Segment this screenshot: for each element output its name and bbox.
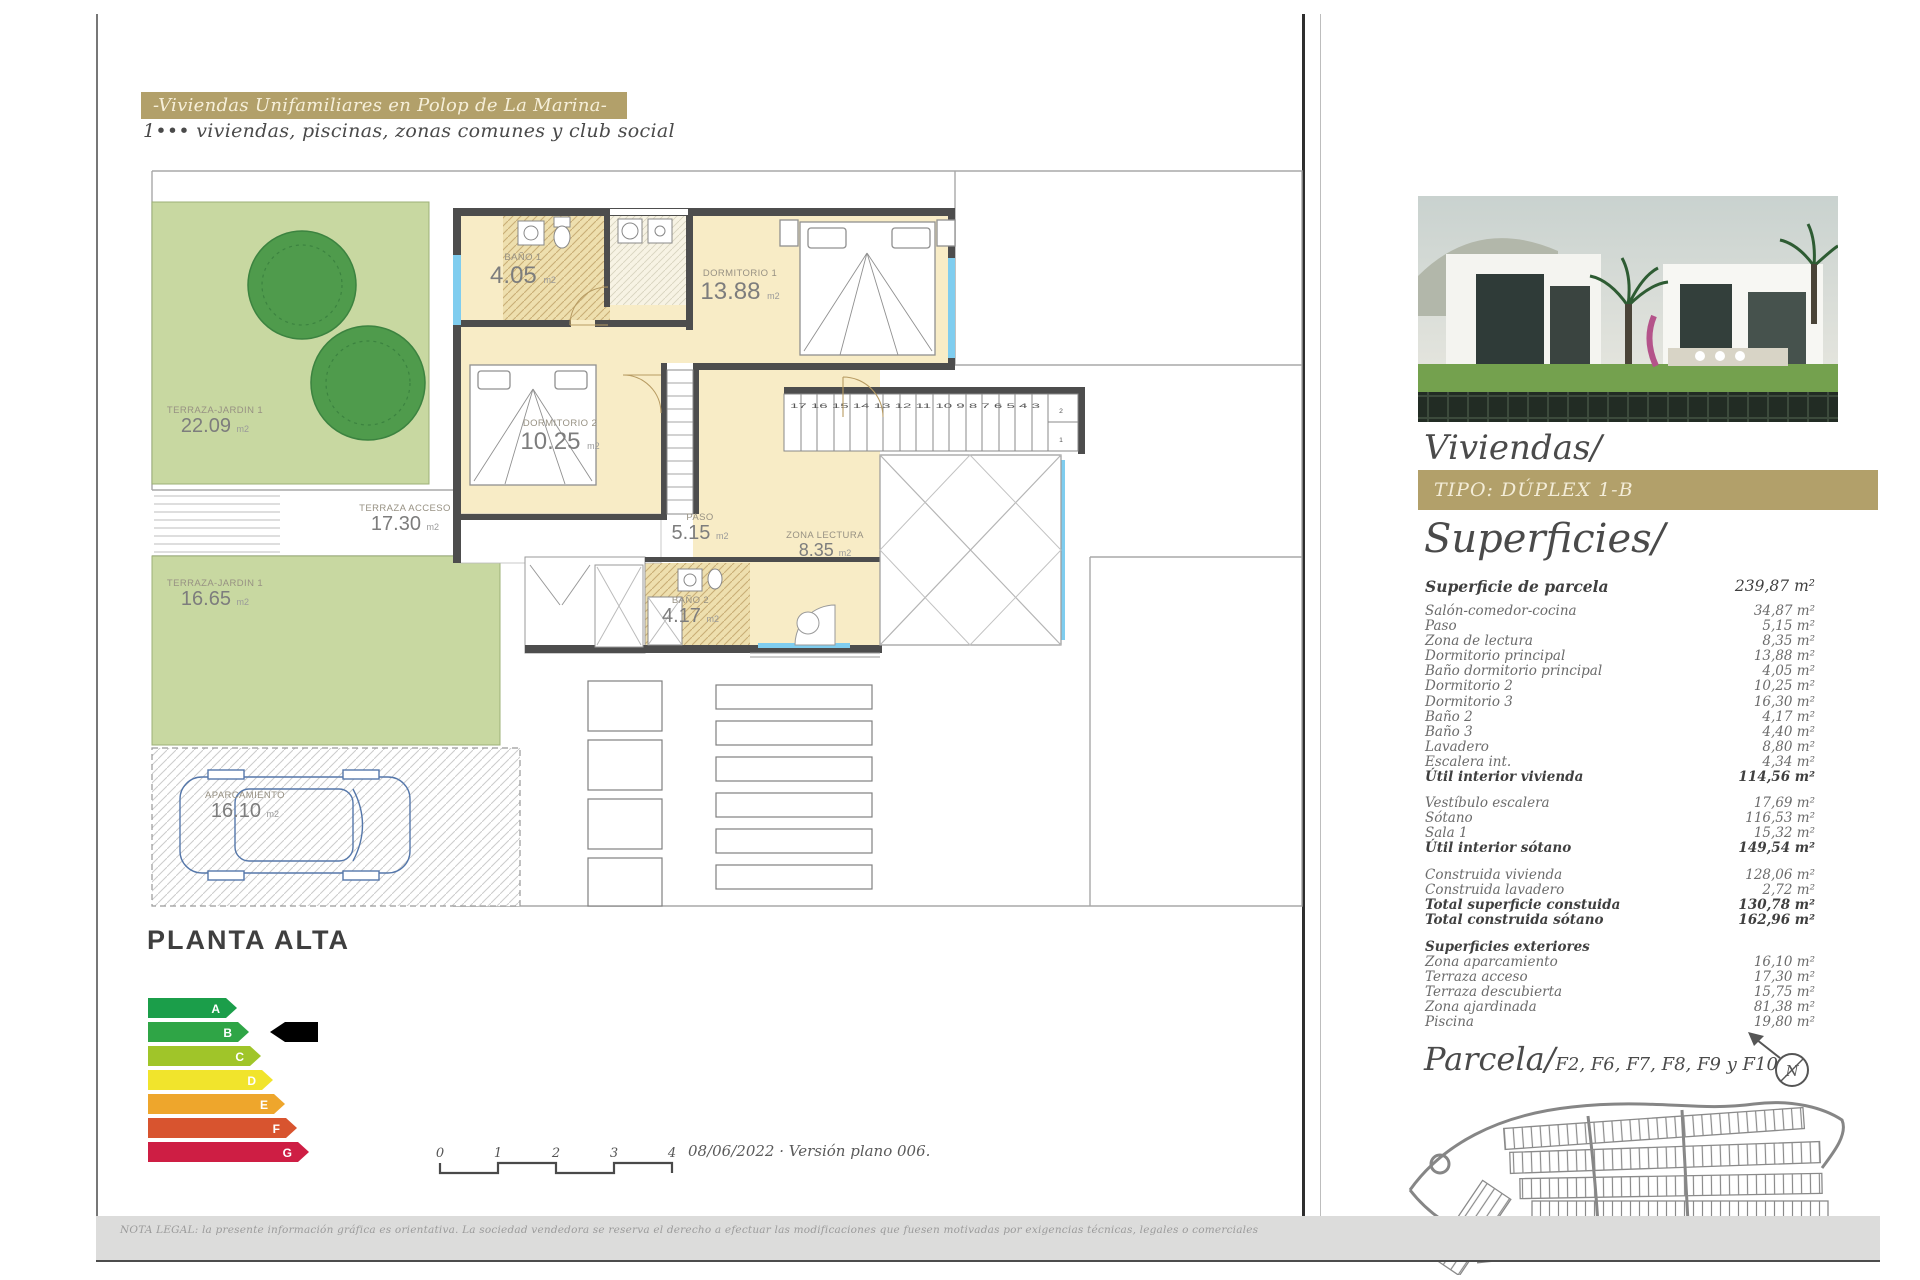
surface-row: Terraza descubierta15,75 m² [1425, 985, 1815, 1000]
tipo-label: TIPO: DÚPLEX 1-B [1418, 470, 1878, 510]
surface-row: Útil interior sótano149,54 m² [1425, 841, 1815, 856]
brochure-page: -Viviendas Unifamiliares en Polop de La … [0, 0, 1920, 1280]
surfaces-group-interior: Salón-comedor-cocina34,87 m²Paso5,15 m²Z… [1425, 604, 1815, 785]
surface-row: Dormitorio principal13,88 m² [1425, 649, 1815, 664]
floor-title: PLANTA ALTA [147, 925, 350, 956]
surface-row: Vestíbulo escalera17,69 m² [1425, 796, 1815, 811]
surface-row: Baño 34,40 m² [1425, 725, 1815, 740]
staircase: 17 16 15 14 13 12 11 10 9 8 7 6 5 4 3 2 … [784, 394, 1078, 451]
svg-text:N: N [1784, 1062, 1799, 1080]
pergola-slats [716, 685, 872, 889]
parcela-heading: Parcela/F2, F6, F7, F8, F9 y F10 [1424, 1040, 1778, 1078]
svg-text:4: 4 [667, 1146, 676, 1161]
energy-letter-A: A [211, 1002, 220, 1016]
floor-plan: 17 16 15 14 13 12 11 10 9 8 7 6 5 4 3 2 … [140, 165, 1320, 1125]
surface-row: Superficies exteriores [1425, 940, 1815, 955]
scale-bar: 0 1 2 3 4 [430, 1125, 690, 1180]
sidebar-title: Viviendas/ [1424, 428, 1602, 468]
surface-row: Baño dormitorio principal4,05 m² [1425, 664, 1815, 679]
surface-row: Dormitorio 210,25 m² [1425, 679, 1815, 694]
energy-arrow-C [148, 1046, 261, 1066]
surface-row: Zona aparcamiento16,10 m² [1425, 955, 1815, 970]
double-height-void [880, 455, 1061, 645]
energy-letter-F: F [273, 1122, 280, 1136]
parking-area [152, 748, 520, 906]
energy-arrow-A [148, 998, 237, 1018]
surface-row: Salón-comedor-cocina34,87 m² [1425, 604, 1815, 619]
svg-text:2: 2 [551, 1146, 560, 1161]
surface-row: Útil interior vivienda114,56 m² [1425, 770, 1815, 785]
superficies-title: Superficies/ [1424, 516, 1665, 562]
label-dormitorio-2: DORMITORIO 2 10.25 m2 [480, 418, 640, 454]
surface-row: Sótano116,53 m² [1425, 811, 1815, 826]
villa-photo [1418, 196, 1838, 422]
surface-row: Zona ajardinada81,38 m² [1425, 1000, 1815, 1015]
energy-indicator-arrow [270, 1022, 318, 1042]
sidebar-inner-divider [1320, 14, 1321, 1216]
svg-text:1: 1 [1059, 437, 1063, 444]
balcony-rail [750, 653, 880, 657]
surfaces-group-sotano: Vestíbulo escalera17,69 m²Sótano116,53 m… [1425, 796, 1815, 856]
label-bano-1: BAÑO 1 4.05 m2 [458, 252, 588, 288]
svg-text:3: 3 [610, 1146, 618, 1161]
legal-note: NOTA LEGAL: la presente información gráf… [120, 1224, 1880, 1236]
surface-row: Lavadero8,80 m² [1425, 740, 1815, 755]
label-terraza-jardin-1: TERRAZA-JARDIN 1 22.09 m2 [140, 405, 290, 437]
svg-text:2: 2 [1059, 408, 1063, 415]
energy-arrow-B [148, 1022, 249, 1042]
project-subtitle: 1••• viviendas, piscinas, zonas comunes … [143, 120, 675, 142]
surface-row: Construida lavadero2,72 m² [1425, 883, 1815, 898]
energy-letter-C: C [235, 1050, 244, 1064]
entry-steps [154, 496, 280, 552]
surfaces-group-exteriores: Superficies exterioresZona aparcamiento1… [1425, 940, 1815, 1031]
label-zona-lectura: ZONA LECTURA 8.35 m2 [755, 530, 895, 560]
energy-rating-chart: ABCDEFG [148, 998, 348, 1170]
stair-tread-numbers: 17 16 15 14 13 12 11 10 9 8 7 6 5 4 3 [790, 403, 1040, 410]
label-terraza-jardin-side: TERRAZA-JARDIN 1 16.65 m2 [140, 578, 290, 610]
energy-letter-D: D [247, 1074, 256, 1088]
surface-row: Total construida sótano162,96 m² [1425, 913, 1815, 928]
surface-row: Escalera int.4,34 m² [1425, 755, 1815, 770]
plan-version-note: 08/06/2022 · Versión plano 006. [688, 1142, 930, 1160]
parcela-surface-value: 239,87 m² [1735, 577, 1815, 596]
svg-text:0: 0 [436, 1146, 444, 1161]
surface-row: Terraza acceso17,30 m² [1425, 970, 1815, 985]
label-dormitorio-1: DORMITORIO 1 13.88 m2 [660, 268, 820, 304]
parcela-surface-row: Superficie de parcela 239,87 m² [1425, 577, 1815, 596]
wardrobe [667, 370, 693, 514]
parcela-surface-label: Superficie de parcela [1425, 577, 1609, 596]
north-compass-icon: N [1730, 1026, 1820, 1090]
surface-row: Paso5,15 m² [1425, 619, 1815, 634]
legal-footer: NOTA LEGAL: la presente información gráf… [96, 1216, 1880, 1262]
energy-letter-G: G [283, 1146, 292, 1160]
svg-text:1: 1 [494, 1146, 502, 1161]
page-left-border [96, 14, 98, 1262]
floor-plan-drawing: 17 16 15 14 13 12 11 10 9 8 7 6 5 4 3 2 … [140, 165, 1320, 1125]
energy-letter-B: B [223, 1026, 232, 1040]
trellis-squares [588, 681, 662, 906]
surfaces-group-construida: Construida vivienda128,06 m²Construida l… [1425, 868, 1815, 928]
label-terraza-acceso: TERRAZA ACCESO 17.30 m2 [330, 503, 480, 535]
surface-row: Total superficie constuida130,78 m² [1425, 898, 1815, 913]
energy-letter-E: E [260, 1098, 268, 1112]
surface-row: Dormitorio 316,30 m² [1425, 695, 1815, 710]
label-paso: PASO 5.15 m2 [645, 512, 755, 544]
surface-row: Zona de lectura8,35 m² [1425, 634, 1815, 649]
label-bano-2: BAÑO 2 4.17 m2 [628, 595, 753, 627]
surface-row: Baño 24,17 m² [1425, 710, 1815, 725]
label-aparcamiento: APARCAMIENTO 16.10 m2 [170, 790, 320, 822]
surface-row: Construida vivienda128,06 m² [1425, 868, 1815, 883]
project-title: -Viviendas Unifamiliares en Polop de La … [141, 92, 627, 119]
garden-terrace-top [152, 202, 429, 484]
